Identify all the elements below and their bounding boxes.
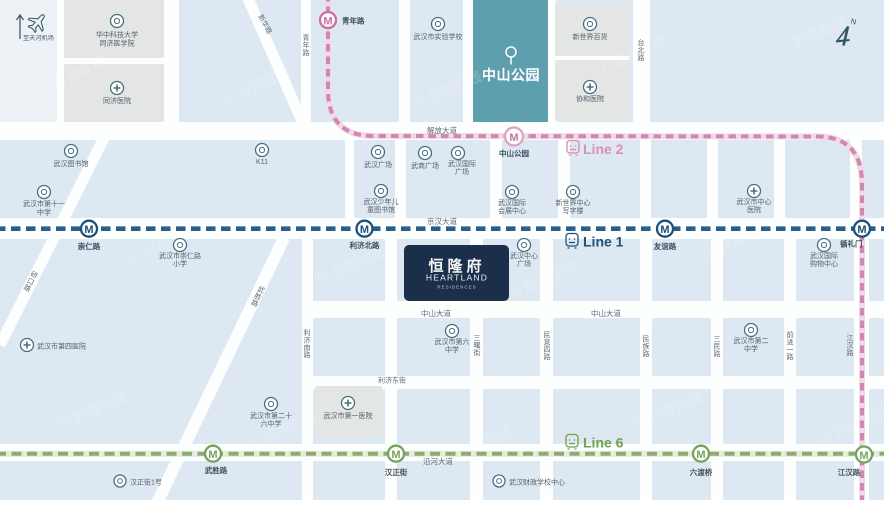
svg-text:K11: K11 <box>256 159 268 166</box>
svg-text:小学: 小学 <box>173 259 187 268</box>
svg-text:武汉财政学校中心: 武汉财政学校中心 <box>509 478 565 487</box>
svg-text:中山大道: 中山大道 <box>421 308 451 318</box>
svg-text:武商广场: 武商广场 <box>411 161 439 170</box>
svg-text:会展中心: 会展中心 <box>498 206 526 215</box>
svg-text:中山大道: 中山大道 <box>591 308 621 318</box>
svg-text:武汉市第二: 武汉市第二 <box>734 336 769 345</box>
svg-text:新世界百货: 新世界百货 <box>573 32 608 41</box>
svg-text:台北路: 台北路 <box>638 38 645 62</box>
svg-text:Line 2: Line 2 <box>583 141 624 157</box>
svg-text:M: M <box>509 132 518 144</box>
svg-text:利济东街: 利济东街 <box>378 376 406 385</box>
svg-text:中学: 中学 <box>37 208 51 217</box>
svg-text:中学: 中学 <box>744 344 758 353</box>
svg-text:至天河机场: 至天河机场 <box>23 34 54 42</box>
svg-text:武汉国际: 武汉国际 <box>498 198 526 207</box>
svg-text:武汉中心: 武汉中心 <box>510 251 538 260</box>
svg-text:武汉图书馆: 武汉图书馆 <box>54 159 89 168</box>
svg-text:M: M <box>660 224 669 236</box>
svg-text:童图书馆: 童图书馆 <box>367 205 395 214</box>
svg-text:新世界中心: 新世界中心 <box>556 198 591 207</box>
svg-text:武汉市第一医院: 武汉市第一医院 <box>324 411 373 420</box>
svg-text:武汉市崇仁路: 武汉市崇仁路 <box>159 251 201 260</box>
svg-text:Line 6: Line 6 <box>583 435 624 451</box>
svg-text:华中科技大学: 华中科技大学 <box>96 30 138 39</box>
svg-text:M: M <box>859 450 868 462</box>
svg-text:武汉市实验学校: 武汉市实验学校 <box>414 32 463 41</box>
svg-text:M: M <box>323 15 332 27</box>
svg-text:M: M <box>84 224 93 236</box>
svg-text:中山公园: 中山公园 <box>499 148 529 158</box>
svg-text:RESIDENCES: RESIDENCES <box>437 285 476 290</box>
svg-text:江汉路: 江汉路 <box>847 334 854 357</box>
svg-text:利济北路: 利济北路 <box>349 240 380 250</box>
svg-text:广场: 广场 <box>455 167 469 176</box>
svg-text:利济南路: 利济南路 <box>304 328 311 359</box>
svg-text:前进一路: 前进一路 <box>787 330 794 361</box>
svg-text:M: M <box>208 449 217 461</box>
svg-text:武汉市第六: 武汉市第六 <box>435 337 470 346</box>
svg-text:崇仁路: 崇仁路 <box>78 241 101 251</box>
svg-text:循礼门: 循礼门 <box>840 239 863 249</box>
svg-text:青年路: 青年路 <box>303 33 310 57</box>
svg-text:武胜路: 武胜路 <box>205 465 228 475</box>
svg-text:武汉市第四医院: 武汉市第四医院 <box>37 342 86 351</box>
svg-text:青年路: 青年路 <box>342 16 365 26</box>
svg-text:武汉国际: 武汉国际 <box>448 159 476 168</box>
svg-text:协和医院: 协和医院 <box>576 94 604 103</box>
svg-text:中学: 中学 <box>445 345 459 354</box>
svg-text:Line 1: Line 1 <box>583 233 624 249</box>
svg-text:武汉市第十一: 武汉市第十一 <box>23 199 65 208</box>
svg-text:三曙街: 三曙街 <box>474 334 481 357</box>
svg-text:购物中心: 购物中心 <box>810 259 838 268</box>
svg-text:武汉广场: 武汉广场 <box>364 160 392 169</box>
svg-text:HEARTLAND: HEARTLAND <box>426 273 488 283</box>
svg-text:民意四路: 民意四路 <box>544 331 551 361</box>
svg-text:同济医院: 同济医院 <box>103 96 131 105</box>
svg-text:M: M <box>857 224 866 236</box>
svg-text:汉正街1号: 汉正街1号 <box>130 478 162 487</box>
svg-text:中山公园: 中山公园 <box>482 67 540 83</box>
svg-text:友谊路: 友谊路 <box>653 241 677 251</box>
svg-text:六中学: 六中学 <box>261 419 282 428</box>
svg-text:武汉国际: 武汉国际 <box>810 251 838 260</box>
svg-text:写字楼: 写字楼 <box>563 206 584 215</box>
svg-text:M: M <box>391 449 400 461</box>
svg-text:武汉市第二十: 武汉市第二十 <box>250 411 292 420</box>
svg-text:三民路: 三民路 <box>714 335 721 358</box>
svg-text:武汉少年儿: 武汉少年儿 <box>364 197 399 206</box>
svg-text:医院: 医院 <box>747 205 761 214</box>
svg-text:同济医学院: 同济医学院 <box>100 39 135 48</box>
svg-text:M: M <box>360 224 369 236</box>
svg-text:沿河大道: 沿河大道 <box>423 456 453 466</box>
svg-text:汉正街: 汉正街 <box>385 467 408 477</box>
svg-text:京汉大道: 京汉大道 <box>427 216 457 226</box>
svg-text:M: M <box>696 449 705 461</box>
svg-text:解放大道: 解放大道 <box>427 125 457 135</box>
svg-text:江汉路: 江汉路 <box>838 467 861 477</box>
svg-text:民族路: 民族路 <box>643 335 650 358</box>
svg-text:武汉市中心: 武汉市中心 <box>737 197 772 206</box>
svg-text:广场: 广场 <box>517 259 531 268</box>
svg-text:六渡桥: 六渡桥 <box>690 467 713 477</box>
